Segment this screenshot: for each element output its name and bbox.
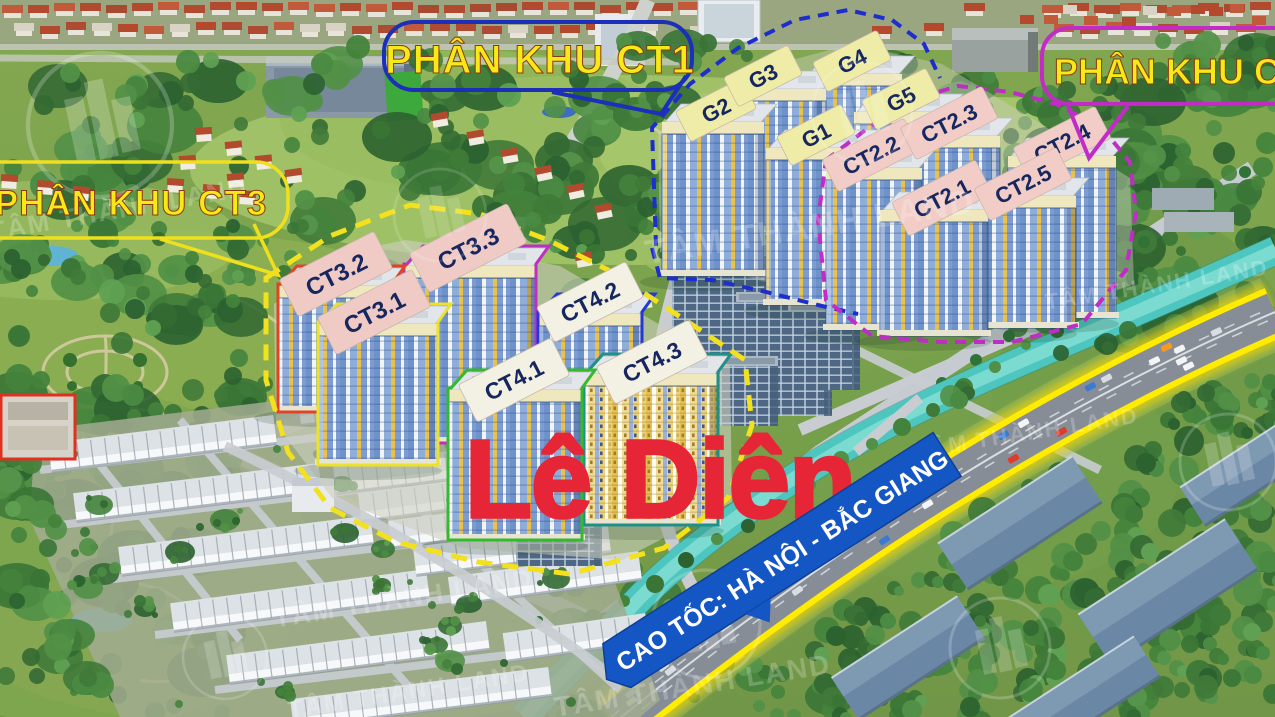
svg-text:PHÂN KHU CT1: PHÂN KHU CT1 xyxy=(385,36,695,82)
svg-text:PHÂN KHU CT2: PHÂN KHU CT2 xyxy=(1054,50,1275,92)
svg-text:PHÂN KHU CT3: PHÂN KHU CT3 xyxy=(0,183,267,223)
